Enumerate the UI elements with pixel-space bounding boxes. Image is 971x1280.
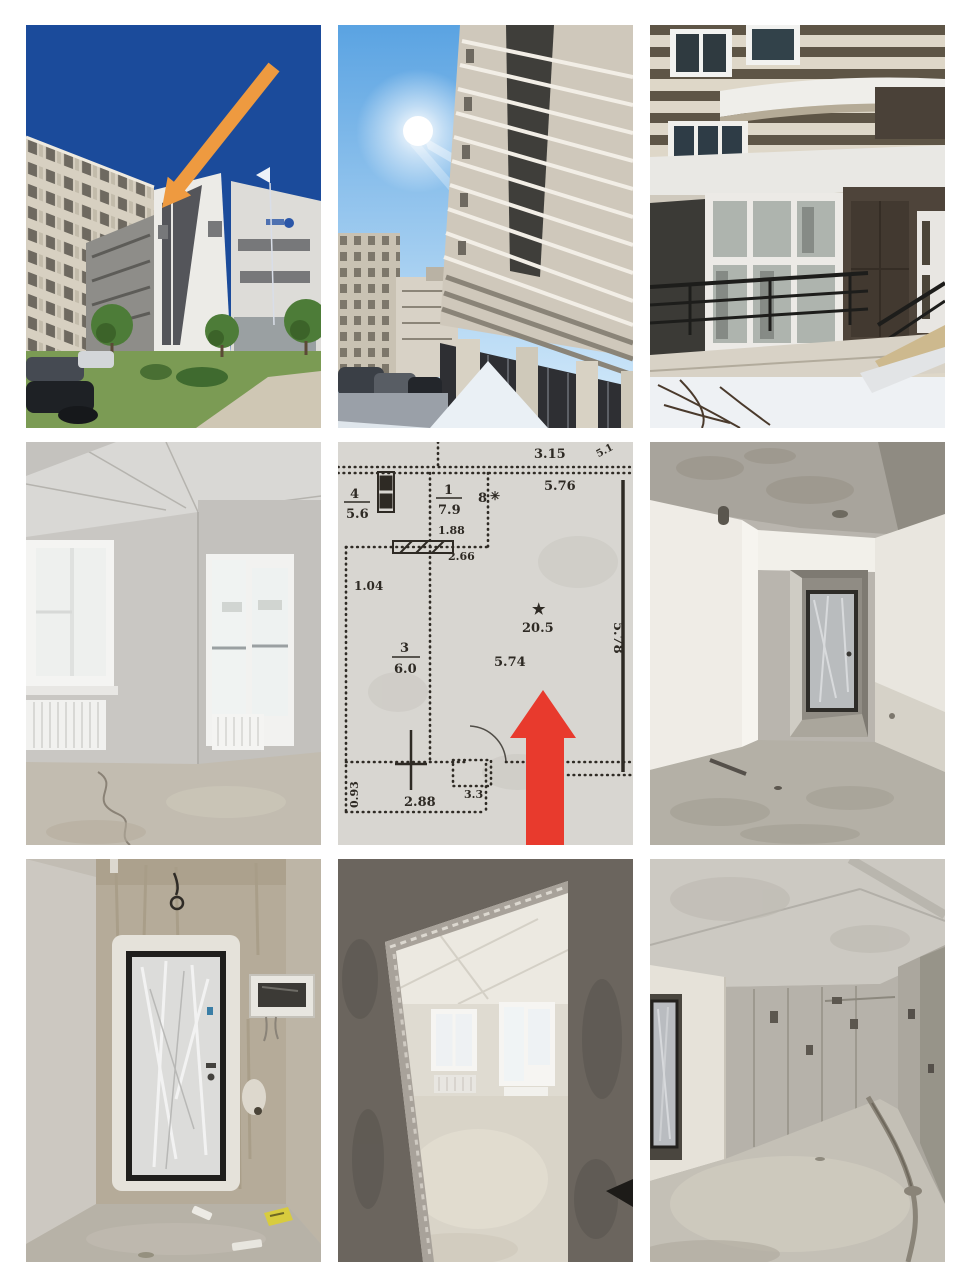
dim-3-15: 3.15 (534, 447, 566, 462)
photo-building-entrance (650, 25, 945, 428)
room3-no: 3 (400, 641, 409, 656)
dim-0-93: 0.93 (348, 781, 361, 808)
photo-office-building-orange-arrow (26, 25, 321, 428)
main-tower (440, 25, 633, 375)
door-with-film (112, 935, 240, 1191)
dim-2-88: 2.88 (404, 795, 436, 810)
glass-wall (705, 193, 843, 351)
dim-1-88: 1.88 (438, 524, 465, 537)
room-window-1 (431, 1009, 477, 1093)
mark-8: 8 (478, 491, 487, 506)
photo-hallway-entry-door (650, 442, 945, 845)
white-plaster-wall-left (650, 965, 725, 1181)
photo-floor-plan-scan: 3.15 5.76 5.1 4 5.6 1 7.9 1.88 8 ✳ 2.66 … (338, 442, 633, 845)
right-wall (286, 859, 321, 1244)
radiator-left (26, 700, 106, 750)
right-white-wall (875, 514, 945, 772)
dim-5-78: 5.78 (610, 622, 625, 654)
film-covered-door (652, 1001, 677, 1147)
dim-5-76: 5.76 (544, 479, 576, 494)
radiator-right (212, 714, 264, 750)
photo-highrise-tower-sun (338, 25, 633, 428)
doorway-opening (790, 570, 868, 737)
dim-3-3: 3.3 (464, 788, 483, 801)
entry-door-film (808, 592, 856, 710)
room1-area: 7.9 (438, 503, 461, 518)
wall-patch-hole (242, 1079, 266, 1115)
photo-entry-door-film (26, 859, 321, 1262)
dim-2-66: 2.66 (448, 550, 475, 563)
room1-no: 1 (444, 483, 453, 498)
window-left (26, 540, 118, 695)
photo-large-concrete-room (650, 859, 945, 1262)
room4-no: 4 (350, 487, 359, 502)
concrete-floor (26, 752, 321, 845)
photo-grid: 3.15 5.76 5.1 4 5.6 1 7.9 1.88 8 ✳ 2.66 … (26, 25, 945, 1262)
dim-1-04: 1.04 (354, 579, 383, 593)
pipe-stub (110, 859, 118, 873)
dim-5-74: 5.74 (494, 655, 526, 670)
room2-star: ★ (532, 600, 546, 618)
left-wall-smooth (26, 859, 96, 1244)
left-white-wall (650, 500, 758, 770)
photo-collage-page: 3.15 5.76 5.1 4 5.6 1 7.9 1.88 8 ✳ 2.66 … (0, 0, 971, 1280)
room2-area: 20.5 (522, 621, 554, 636)
room3-area: 6.0 (394, 662, 417, 677)
photo-room-two-windows (26, 442, 321, 845)
room4-area: 5.6 (346, 507, 369, 522)
star-small: ✳ (490, 489, 500, 503)
photo-doorway-into-bright-room (338, 859, 633, 1262)
